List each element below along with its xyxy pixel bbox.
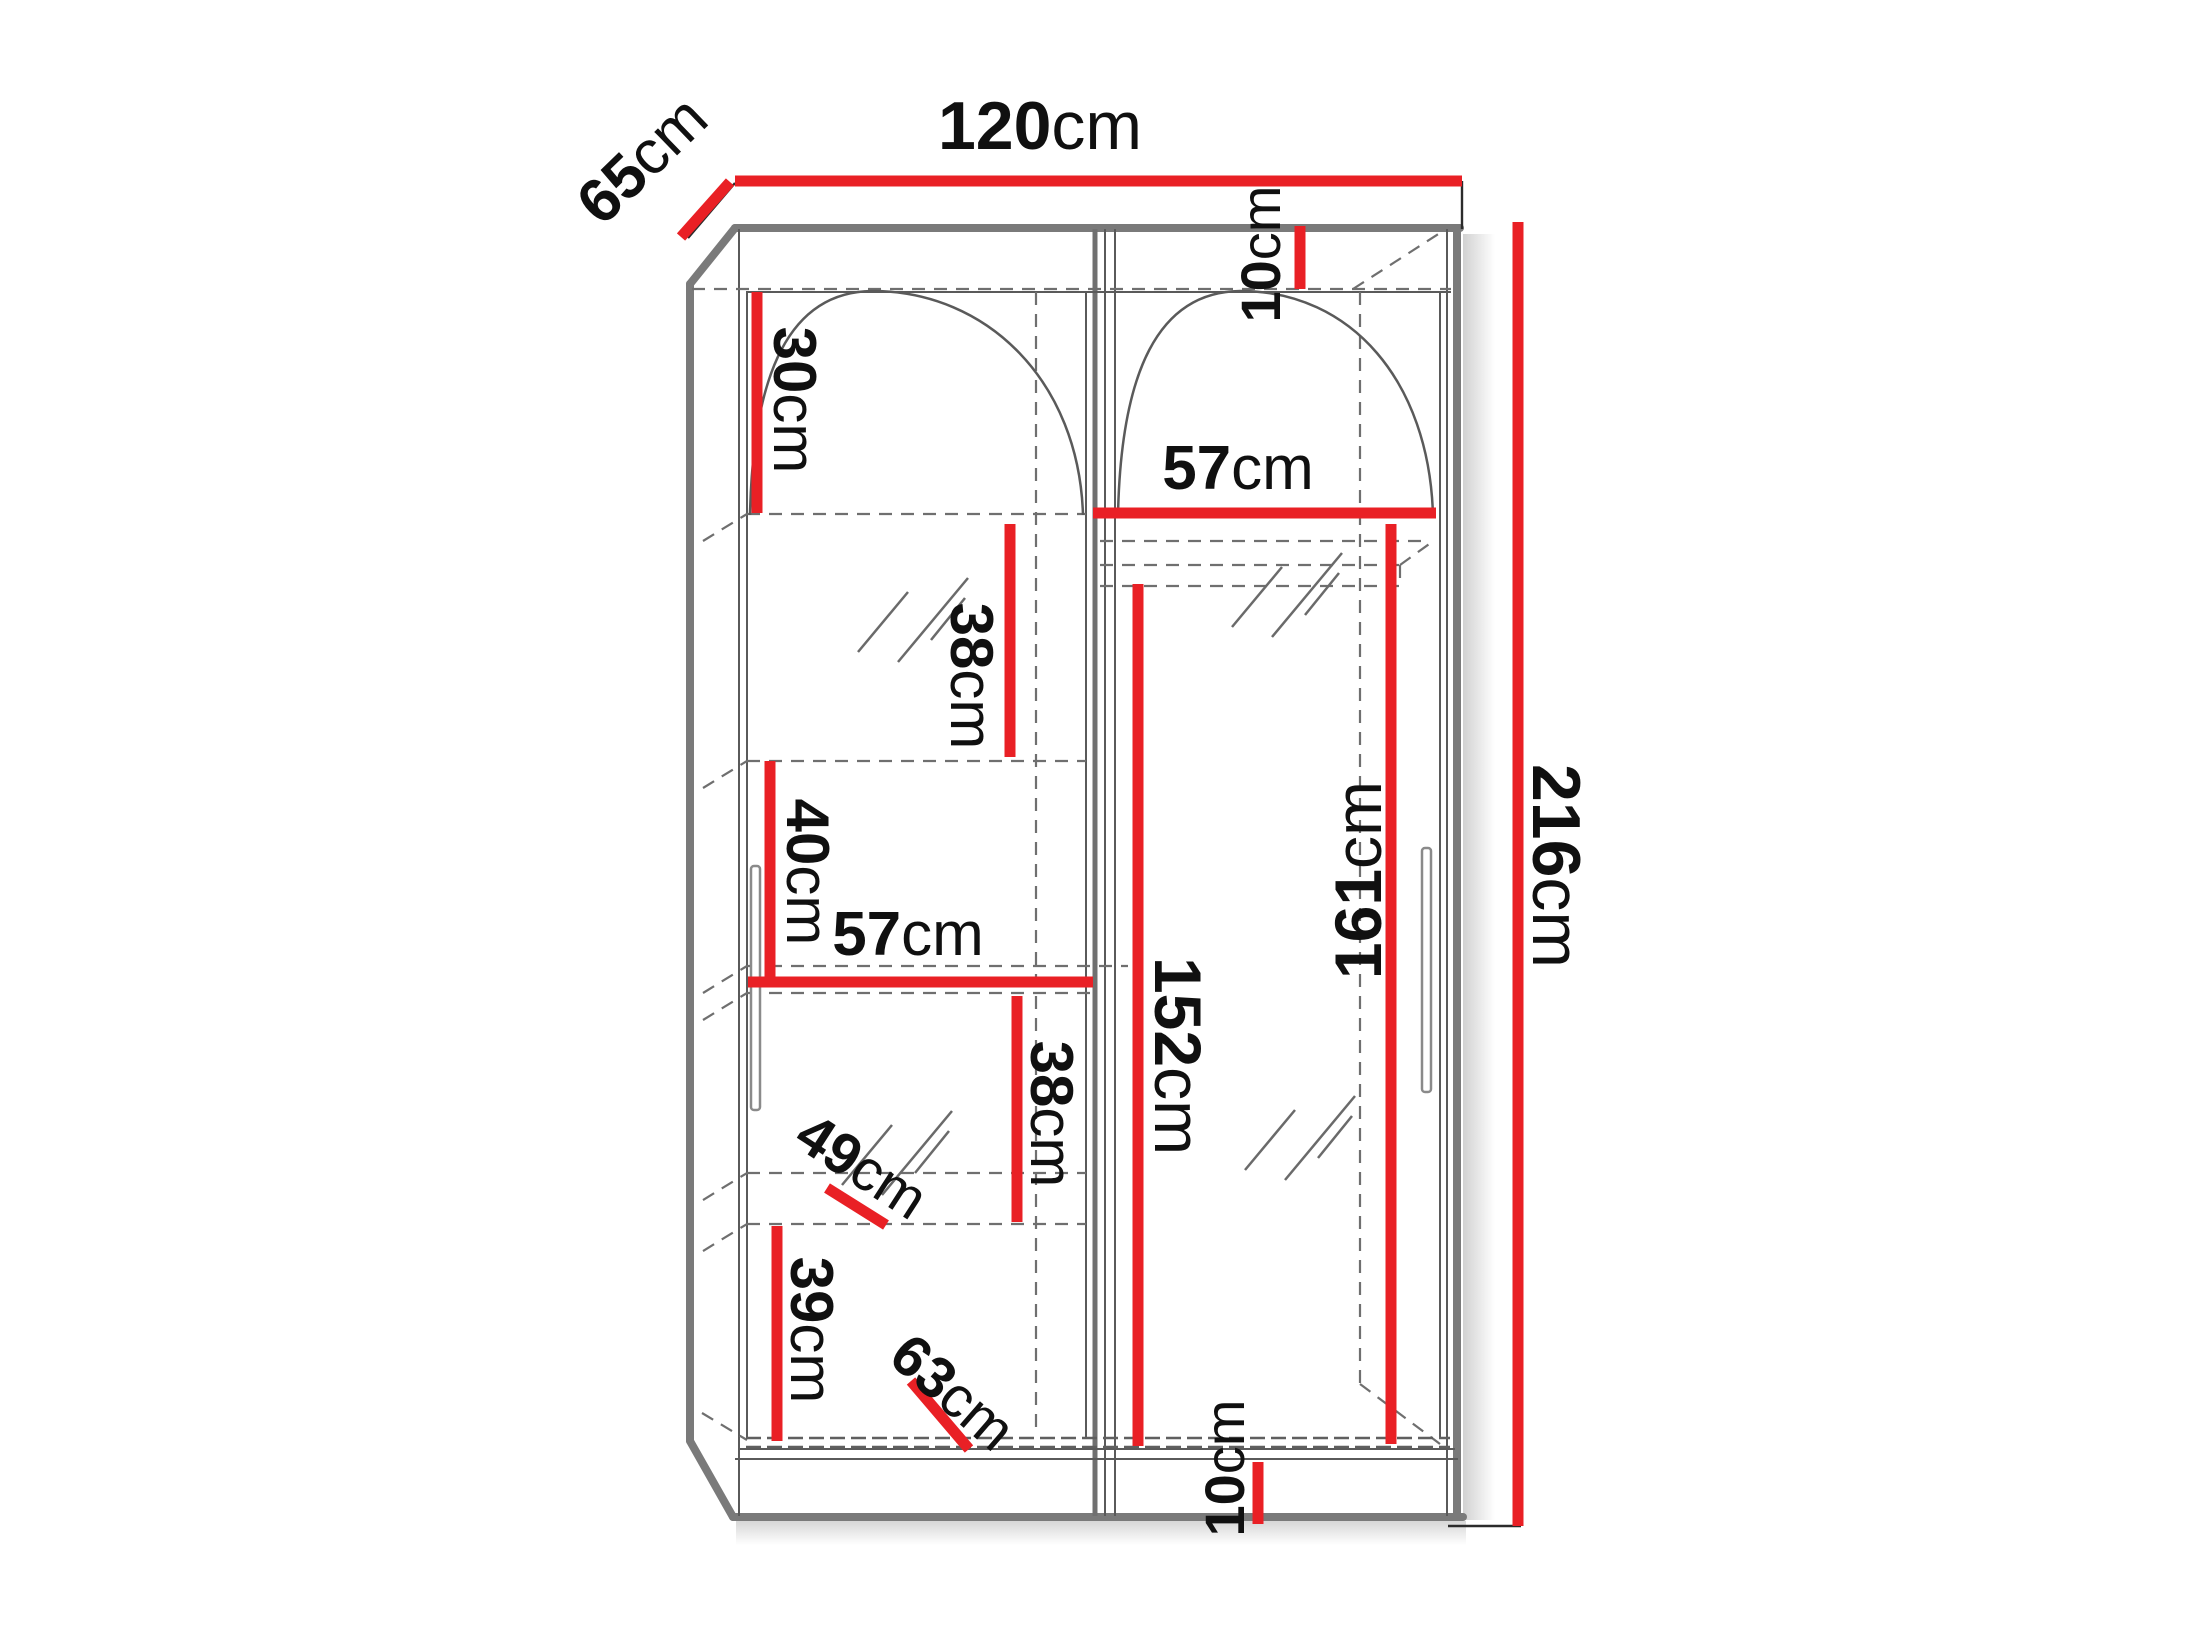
dim-shelf-space-38a-label: 38cm <box>939 603 1006 750</box>
dim-rail-width-57-label: 57cm <box>1162 434 1314 503</box>
dim-overall-width-label: 120cm <box>938 88 1142 164</box>
background <box>0 0 2200 1650</box>
dim-shelf-space-39-label: 39cm <box>779 1257 846 1404</box>
right-door-handle <box>1422 848 1431 1092</box>
left-door-handle <box>751 866 760 1110</box>
dim-plinth-height-10-label: 10cm <box>1193 1400 1256 1537</box>
cabinet-bottom-shadow <box>736 1521 1466 1545</box>
dim-overall-height-label: 216cm <box>1518 764 1594 968</box>
dim-top-panel-gap-label: 10cm <box>1229 186 1292 323</box>
dim-hang-height-152-label: 152cm <box>1141 957 1215 1155</box>
dim-shelf-space-30-label: 30cm <box>762 327 829 474</box>
wardrobe-dimension-diagram: 120cm65cm216cm10cm30cm38cm40cm57cm38cm49… <box>0 0 2200 1650</box>
dim-shelf-space-38b-label: 38cm <box>1019 1041 1086 1188</box>
dim-hang-height-161-label: 161cm <box>1321 781 1395 979</box>
cabinet-side-shadow <box>1463 234 1495 1520</box>
technical-drawing-canvas: 120cm65cm216cm10cm30cm38cm40cm57cm38cm49… <box>0 0 2200 1650</box>
dim-shelf-width-57-label: 57cm <box>832 900 984 969</box>
